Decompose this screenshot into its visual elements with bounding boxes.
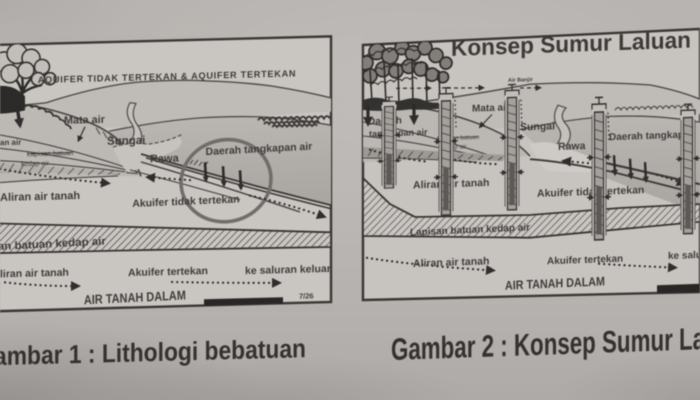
svg-text:Gambar 2 : Konsep Sumur Lal: Gambar 2 : Konsep Sumur Laluan bbox=[391, 319, 700, 367]
svg-text:ambar 1 : Lithologi bebatua: ambar 1 : Lithologi bebatuan bbox=[0, 333, 306, 371]
